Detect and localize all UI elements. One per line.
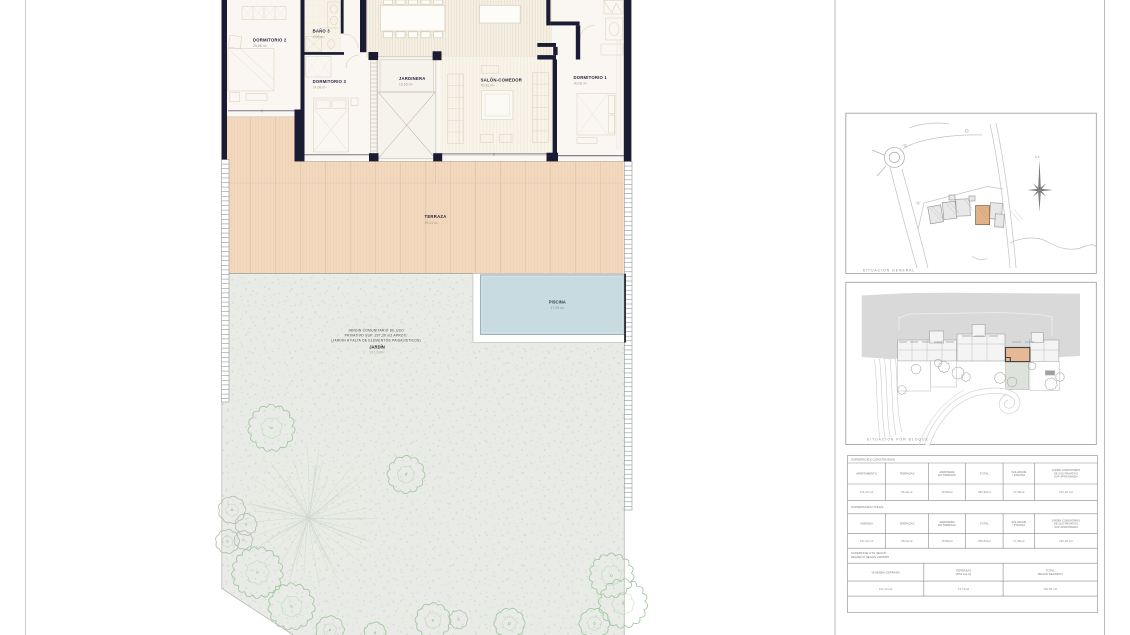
svg-text:95,21m2: 95,21m2 bbox=[901, 539, 913, 543]
svg-text:EN TERRAZA: EN TERRAZA bbox=[938, 473, 956, 477]
svg-text:APARTAMENTO: APARTAMENTO bbox=[856, 471, 878, 475]
svg-text:SITUACION GENERAL: SITUACION GENERAL bbox=[863, 269, 916, 273]
svg-text:281,90m2: 281,90m2 bbox=[978, 490, 991, 494]
svg-text:14,08 m²: 14,08 m² bbox=[313, 86, 328, 90]
svg-text:95,21 m²: 95,21 m² bbox=[425, 221, 440, 225]
svg-text:TOTAL: TOTAL bbox=[980, 471, 989, 475]
svg-text:17,09m2: 17,09m2 bbox=[1013, 490, 1025, 494]
svg-text:40,81 m²: 40,81 m² bbox=[481, 84, 496, 88]
svg-text:TERRAZAS: TERRAZAS bbox=[899, 522, 914, 526]
svg-text:TERRAZAS: TERRAZAS bbox=[956, 569, 971, 573]
svg-text:(JARDIN A FALTA DE ELEMENTOS: (JARDIN A FALTA DE ELEMENTOS PAISAJISTIC… bbox=[331, 338, 421, 342]
svg-text:SEGUN DECRETO: SEGUN DECRETO bbox=[1038, 572, 1064, 576]
svg-text:16,55 m²: 16,55 m² bbox=[399, 83, 414, 87]
svg-text:VIVIENDA CERRADA: VIVIENDA CERRADA bbox=[871, 571, 899, 575]
svg-text:171,40 m2: 171,40 m2 bbox=[860, 490, 874, 494]
svg-text:16,55m2: 16,55m2 bbox=[941, 490, 953, 494]
svg-text:SITUACION POR BLOQUE: SITUACION POR BLOQUE bbox=[867, 438, 929, 442]
svg-text:16,55m2: 16,55m2 bbox=[941, 539, 953, 543]
svg-text:TERRAZAS: TERRAZAS bbox=[899, 471, 914, 475]
svg-text:TERRAZA: TERRAZA bbox=[425, 214, 447, 219]
svg-text:297,20m²: 297,20m² bbox=[369, 350, 385, 354]
svg-text:95,21m2: 95,21m2 bbox=[901, 490, 913, 494]
svg-text:JARDINERA: JARDINERA bbox=[399, 76, 426, 81]
svg-text:17,09m2: 17,09m2 bbox=[1013, 539, 1025, 543]
svg-text:161,83 m2: 161,83 m2 bbox=[1043, 587, 1057, 591]
svg-text:297,20 m2: 297,20 m2 bbox=[1059, 539, 1073, 543]
svg-text:SUPERFICIES CONSTRUIDAS: SUPERFICIES CONSTRUIDAS bbox=[851, 458, 895, 462]
svg-text:25,86 m²: 25,86 m² bbox=[253, 44, 268, 48]
svg-text:14,71m2: 14,71m2 bbox=[958, 587, 970, 591]
svg-text:SUP. APROXIMADA: SUP. APROXIMADA bbox=[1054, 525, 1078, 529]
svg-text:DORMITORIO 2: DORMITORIO 2 bbox=[253, 38, 287, 43]
svg-text:JARDÍN: JARDÍN bbox=[369, 344, 385, 349]
svg-text:DORMITORIO 3: DORMITORIO 3 bbox=[313, 79, 347, 84]
svg-text:SUP. APROXIMADA: SUP. APROXIMADA bbox=[1054, 475, 1078, 479]
svg-text:N.S: N.S bbox=[1035, 155, 1040, 159]
svg-text:DORMITORIO 1: DORMITORIO 1 bbox=[574, 75, 608, 80]
svg-text:PISCINA: PISCINA bbox=[549, 299, 566, 304]
svg-text:/ PISCINA: / PISCINA bbox=[1012, 523, 1025, 527]
svg-text:PRIVATIVO SUP. 297,20 m2 APRO: PRIVATIVO SUP. 297,20 m2 APROX. bbox=[345, 333, 408, 337]
svg-text:VIVIENDA: VIVIENDA bbox=[860, 522, 873, 526]
svg-text:(50% sup.út): (50% sup.út) bbox=[956, 572, 971, 576]
svg-text:BAÑO 3: BAÑO 3 bbox=[313, 28, 331, 33]
svg-text:/ PISCINA: / PISCINA bbox=[1012, 473, 1025, 477]
svg-text:JARDIN COMUNITARIO DE USO: JARDIN COMUNITARIO DE USO bbox=[348, 329, 404, 333]
svg-text:EN TERRAZA: EN TERRAZA bbox=[938, 523, 956, 527]
svg-text:17,09 m²: 17,09 m² bbox=[551, 306, 565, 310]
svg-text:SALÓN-COMEDOR: SALÓN-COMEDOR bbox=[481, 77, 523, 82]
svg-text:256,83m2: 256,83m2 bbox=[978, 539, 991, 543]
svg-text:4,05 m²: 4,05 m² bbox=[313, 35, 326, 39]
svg-text:SUPERFICIES UTILES: SUPERFICIES UTILES bbox=[851, 505, 883, 509]
svg-text:147,12 m2: 147,12 m2 bbox=[860, 539, 874, 543]
svg-text:147,12 m2: 147,12 m2 bbox=[879, 587, 893, 591]
svg-text:TOTAL: TOTAL bbox=[980, 522, 989, 526]
svg-text:30,06 m²: 30,06 m² bbox=[574, 81, 589, 85]
svg-text:297,20 m2: 297,20 m2 bbox=[1059, 490, 1073, 494]
svg-text:DECRETO SEGUN 218/2005: DECRETO SEGUN 218/2005 bbox=[851, 555, 889, 559]
